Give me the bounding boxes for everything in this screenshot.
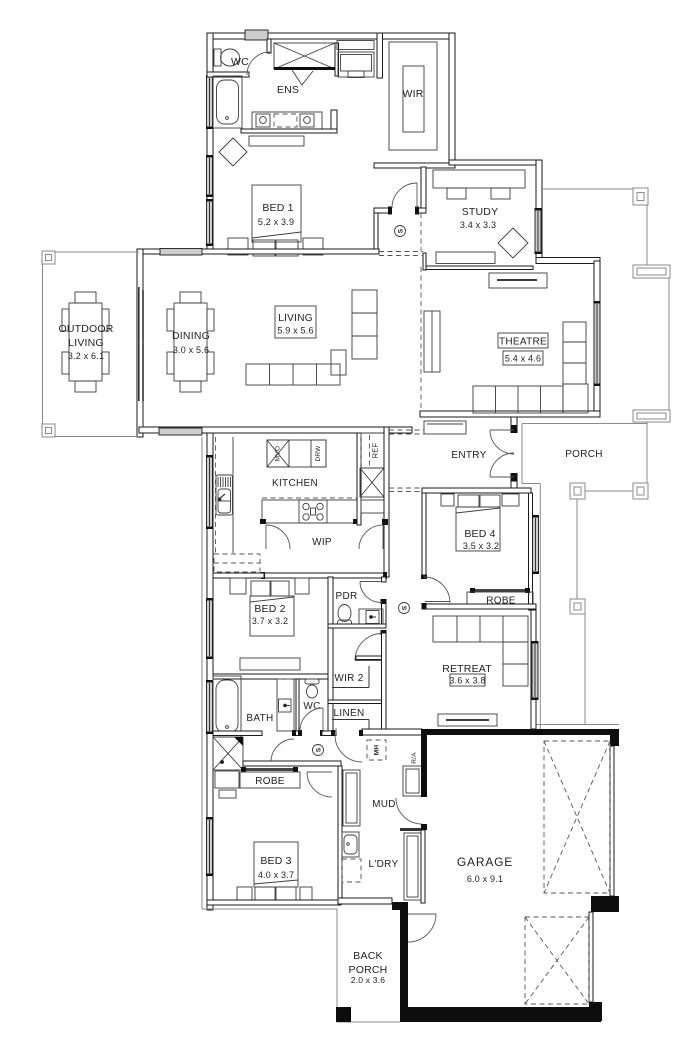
svg-text:DINING: DINING	[172, 330, 210, 342]
svg-text:ENS: ENS	[277, 84, 299, 96]
svg-text:3.4 x 3.3: 3.4 x 3.3	[460, 220, 496, 230]
svg-text:REF: REF	[371, 442, 380, 458]
svg-text:MUD: MUD	[372, 799, 396, 810]
svg-text:WIR 2: WIR 2	[334, 673, 363, 684]
svg-text:THEATRE: THEATRE	[499, 337, 547, 348]
svg-text:S: S	[316, 747, 323, 752]
svg-text:DRW: DRW	[315, 445, 322, 462]
svg-text:BED 1: BED 1	[262, 202, 293, 214]
svg-text:3.0 x 5.6: 3.0 x 5.6	[173, 345, 209, 355]
svg-text:6.0 x 9.1: 6.0 x 9.1	[467, 874, 503, 884]
svg-text:5.4 x 4.6: 5.4 x 4.6	[505, 354, 541, 364]
svg-text:BACK: BACK	[353, 950, 382, 962]
svg-text:5.9 x 5.6: 5.9 x 5.6	[277, 326, 313, 336]
svg-text:WIP: WIP	[312, 537, 332, 548]
svg-text:KITCHEN: KITCHEN	[272, 478, 318, 489]
svg-text:L'DRY: L'DRY	[369, 859, 399, 870]
svg-text:R/A: R/A	[411, 752, 418, 764]
svg-text:PORCH: PORCH	[565, 449, 603, 460]
svg-text:MVO: MVO	[275, 446, 282, 461]
svg-text:GARAGE: GARAGE	[457, 855, 513, 869]
svg-text:BED 3: BED 3	[260, 855, 291, 867]
svg-text:STUDY: STUDY	[462, 206, 499, 218]
svg-text:4.0 x 3.7: 4.0 x 3.7	[258, 870, 294, 880]
svg-text:BED 2: BED 2	[254, 603, 285, 615]
svg-text:LIVING: LIVING	[278, 313, 313, 324]
svg-text:3.7 x 3.2: 3.7 x 3.2	[252, 616, 288, 626]
svg-text:2.0 x 3.6: 2.0 x 3.6	[351, 975, 385, 985]
svg-text:LIVING: LIVING	[68, 337, 104, 349]
svg-text:5.2 x 3.9: 5.2 x 3.9	[258, 217, 294, 227]
svg-text:PDR: PDR	[335, 591, 357, 602]
svg-text:3.2 x 6.1: 3.2 x 6.1	[68, 351, 104, 361]
svg-text:LINEN: LINEN	[334, 708, 365, 719]
svg-text:WIR: WIR	[402, 88, 423, 100]
svg-text:S: S	[402, 605, 409, 610]
svg-text:3.6 x 3.8: 3.6 x 3.8	[449, 676, 485, 686]
svg-text:BED 4: BED 4	[464, 528, 495, 540]
svg-text:3.5 x 3.2: 3.5 x 3.2	[463, 541, 499, 551]
svg-text:S: S	[398, 228, 405, 233]
svg-text:BATH: BATH	[246, 713, 273, 724]
svg-text:WC: WC	[231, 56, 249, 68]
svg-text:MH: MH	[374, 745, 381, 756]
svg-text:OUTDOOR: OUTDOOR	[58, 323, 113, 335]
svg-text:ENTRY: ENTRY	[451, 450, 486, 461]
svg-text:RETREAT: RETREAT	[442, 663, 492, 675]
svg-text:ROBE: ROBE	[255, 776, 285, 787]
